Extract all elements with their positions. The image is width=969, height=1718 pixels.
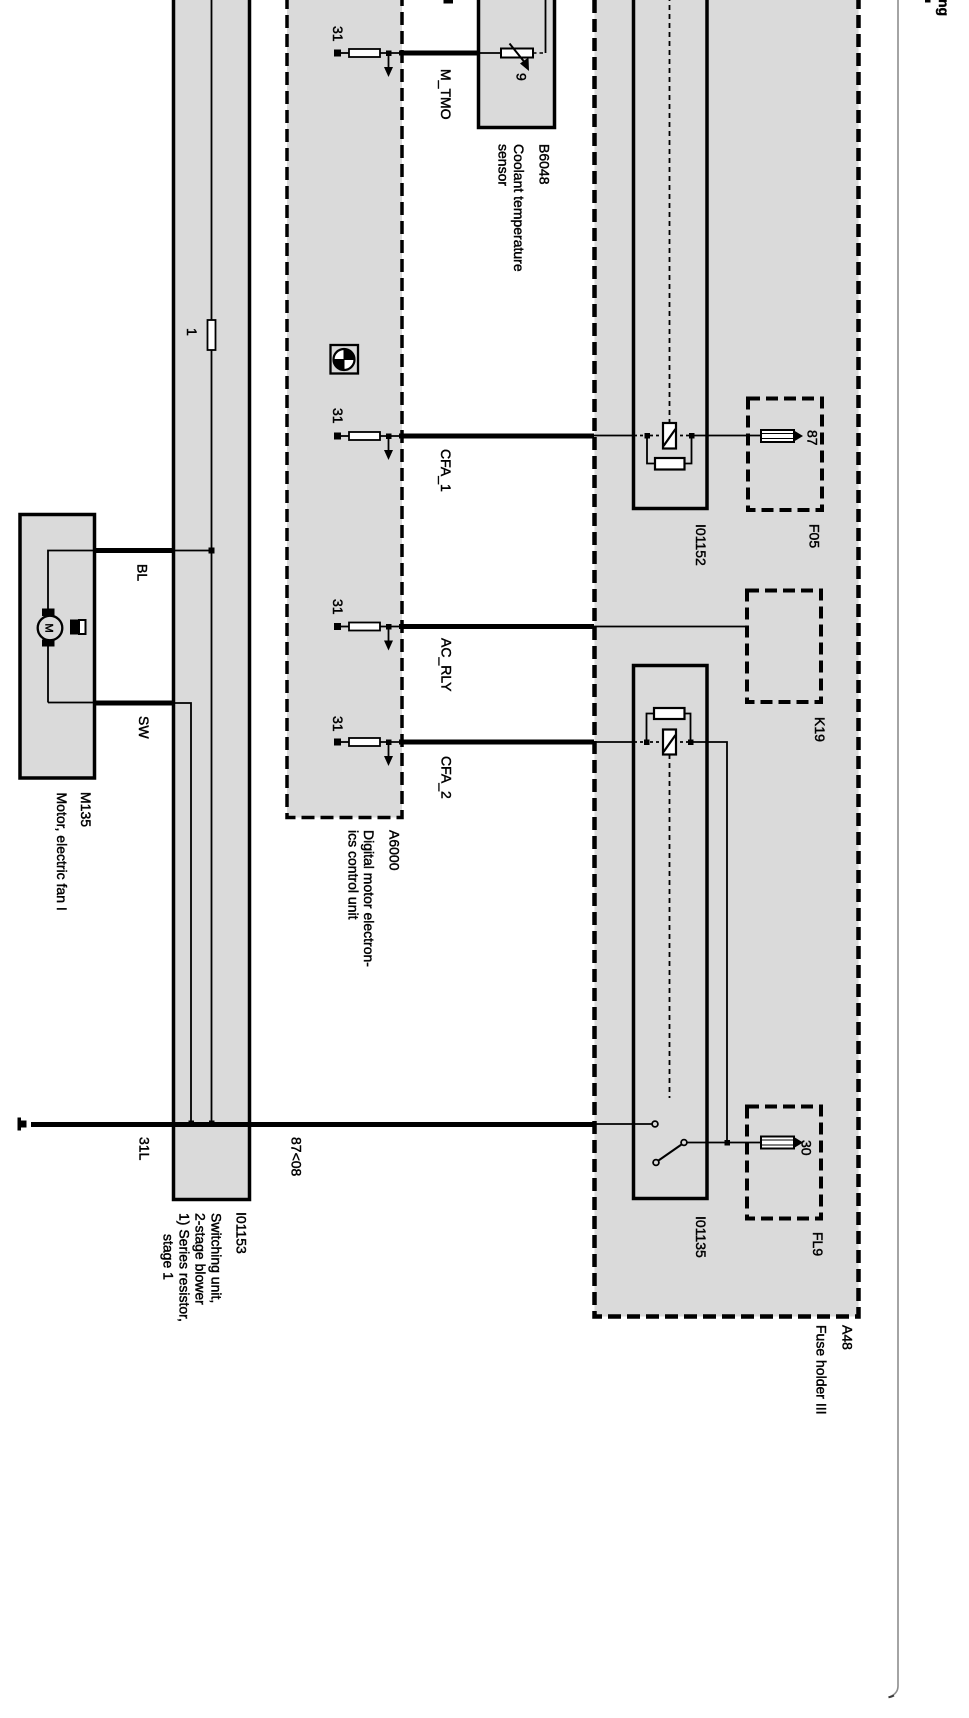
svg-text:I01153: I01153 xyxy=(234,1212,250,1254)
svg-text:M135: M135 xyxy=(78,792,94,827)
svg-text:Motor, electric fan I: Motor, electric fan I xyxy=(54,793,70,911)
svg-text:Digital motor electron-: Digital motor electron- xyxy=(361,830,377,967)
svg-text:A48: A48 xyxy=(840,1325,856,1350)
svg-text:M_TMO: M_TMO xyxy=(438,69,454,120)
svg-text:Switching unit,: Switching unit, xyxy=(209,1213,225,1303)
svg-text:31L: 31L xyxy=(137,1137,153,1161)
svg-text:I01135: I01135 xyxy=(693,1216,709,1258)
svg-text:M: M xyxy=(43,624,55,633)
svg-text:1: 1 xyxy=(184,328,200,336)
svg-text:31: 31 xyxy=(330,599,346,615)
svg-text:31: 31 xyxy=(330,408,346,424)
svg-text:K19: K19 xyxy=(812,717,828,742)
svg-text:31: 31 xyxy=(330,716,346,732)
svg-text:ng: ng xyxy=(936,0,952,16)
svg-text:1) Series resistor,: 1) Series resistor, xyxy=(177,1213,193,1322)
svg-text:AC_RLY: AC_RLY xyxy=(439,638,455,692)
svg-text:I01152: I01152 xyxy=(693,524,709,566)
svg-text:30: 30 xyxy=(799,1140,815,1156)
svg-text:stage 1: stage 1 xyxy=(161,1234,177,1280)
svg-text:BL: BL xyxy=(135,564,151,581)
svg-text:F05: F05 xyxy=(807,524,823,548)
svg-text:31: 31 xyxy=(330,26,346,42)
svg-text:SW: SW xyxy=(136,716,152,739)
svg-text:ics control unit: ics control unit xyxy=(346,830,362,920)
svg-text:87: 87 xyxy=(805,430,821,446)
svg-text:CFA_2: CFA_2 xyxy=(439,756,455,799)
svg-text:B6048: B6048 xyxy=(537,144,553,185)
svg-text:sensor: sensor xyxy=(496,144,512,186)
svg-text:FL9: FL9 xyxy=(810,1232,826,1256)
svg-text:A6000: A6000 xyxy=(387,830,403,871)
svg-text:CFA_1: CFA_1 xyxy=(438,449,454,492)
svg-text:9: 9 xyxy=(514,73,530,81)
svg-text:2-stage blower: 2-stage blower xyxy=(193,1213,209,1305)
svg-text:Fuse holder III: Fuse holder III xyxy=(814,1325,830,1415)
svg-text:Coolant temperature: Coolant temperature xyxy=(511,144,527,272)
svg-text:87<08: 87<08 xyxy=(289,1137,305,1177)
